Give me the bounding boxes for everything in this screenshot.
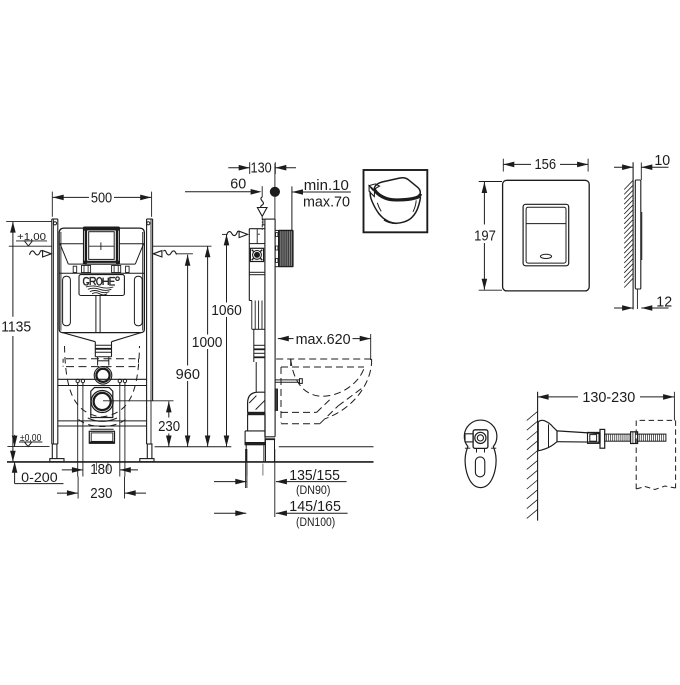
svg-text:1060: 1060 xyxy=(211,302,242,319)
svg-text:1000: 1000 xyxy=(192,334,223,351)
svg-text:500: 500 xyxy=(91,189,112,206)
svg-text:180: 180 xyxy=(90,461,112,478)
svg-text:min.10: min.10 xyxy=(304,178,349,194)
svg-text:130-230: 130-230 xyxy=(582,389,635,406)
svg-text:10: 10 xyxy=(654,152,670,169)
svg-text:12: 12 xyxy=(656,293,672,310)
svg-text:135/155: 135/155 xyxy=(289,468,340,484)
svg-text:max.70: max.70 xyxy=(303,194,350,210)
svg-text:(DN100): (DN100) xyxy=(296,517,335,529)
svg-text:max.620: max.620 xyxy=(296,332,351,348)
svg-text:197: 197 xyxy=(474,227,496,244)
svg-text:145/165: 145/165 xyxy=(289,499,341,515)
svg-text:1135: 1135 xyxy=(1,319,31,336)
svg-text:0-200: 0-200 xyxy=(21,470,58,486)
svg-text:130: 130 xyxy=(251,160,272,177)
svg-text:230: 230 xyxy=(158,418,180,435)
svg-text:960: 960 xyxy=(176,366,200,383)
svg-text:230: 230 xyxy=(90,485,112,502)
svg-text:60: 60 xyxy=(230,176,246,193)
svg-text:(DN90): (DN90) xyxy=(296,485,331,497)
svg-text:156: 156 xyxy=(534,156,556,173)
